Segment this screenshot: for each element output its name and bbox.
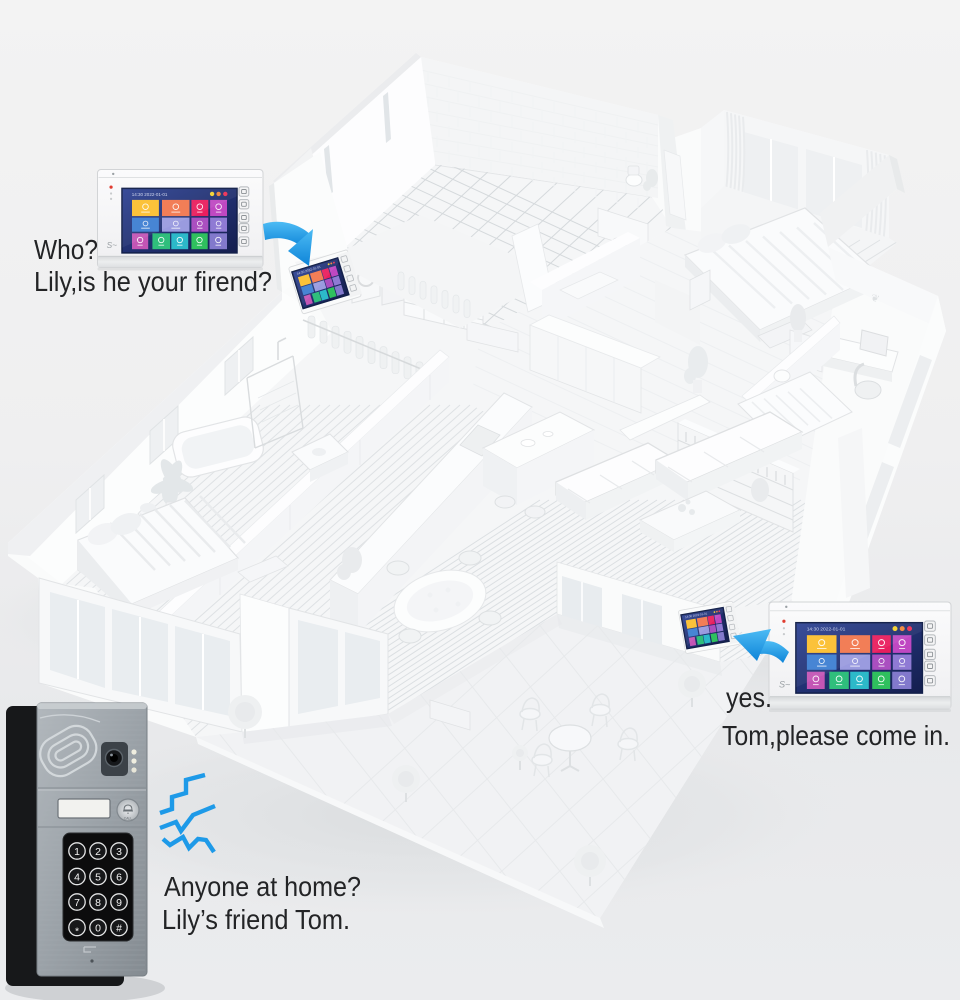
svg-text:5: 5 (95, 871, 101, 883)
svg-text:7: 7 (74, 897, 80, 909)
svg-text:6: 6 (116, 871, 122, 883)
svg-text:#: # (116, 922, 122, 934)
svg-text:*: * (75, 926, 79, 938)
svg-text:yes.: yes. (726, 682, 772, 713)
svg-text:0: 0 (95, 922, 101, 934)
svg-text:Tom,please come in.: Tom,please come in. (722, 720, 950, 751)
svg-text:1: 1 (74, 846, 80, 858)
svg-text:Anyone at home?: Anyone at home? (164, 871, 361, 902)
svg-text:2: 2 (95, 846, 101, 858)
svg-text:4: 4 (74, 871, 80, 883)
svg-text:Who?: Who? (34, 234, 98, 265)
svg-text:Lily’s friend Tom.: Lily’s friend Tom. (162, 904, 350, 935)
svg-text:3: 3 (116, 846, 122, 858)
svg-text:9: 9 (116, 897, 122, 909)
svg-text:8: 8 (95, 897, 101, 909)
svg-text:S~: S~ (107, 240, 118, 250)
svg-text:CALL: CALL (124, 817, 133, 821)
svg-text:Lily,is he your firend?: Lily,is he your firend? (34, 266, 272, 297)
svg-text:S~: S~ (779, 680, 791, 690)
